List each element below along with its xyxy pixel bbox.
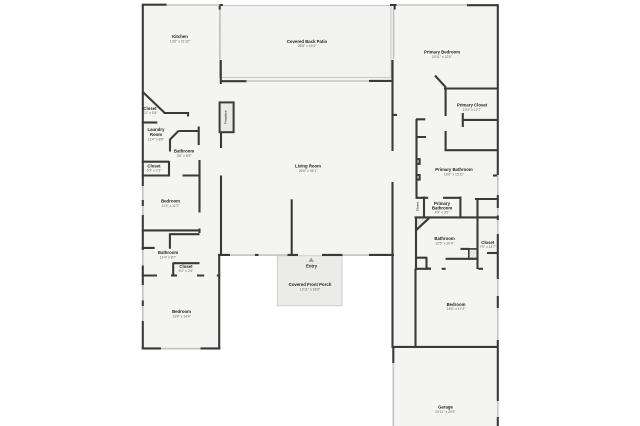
svg-text:Living Room: Living Room [295, 164, 321, 169]
svg-text:11'4" x 11'2": 11'4" x 11'2" [161, 204, 180, 208]
svg-text:Covered Front Porch: Covered Front Porch [289, 282, 332, 287]
svg-text:20'11" x 22'6": 20'11" x 22'6" [432, 55, 453, 59]
svg-text:Fireplace: Fireplace [223, 110, 227, 124]
svg-text:4'9" x 3'5": 4'9" x 3'5" [435, 210, 451, 214]
svg-text:Closet: Closet [416, 202, 420, 211]
svg-text:Bedroom: Bedroom [161, 199, 180, 204]
svg-text:16'5" x 15'11": 16'5" x 15'11" [444, 173, 465, 177]
svg-text:10'4" x 12'7": 10'4" x 12'7" [463, 108, 482, 112]
svg-text:3'6" x 8'9": 3'6" x 8'9" [177, 154, 193, 158]
svg-text:Bathroom: Bathroom [434, 236, 454, 241]
svg-text:36'6" x 15'4": 36'6" x 15'4" [298, 44, 317, 48]
svg-text:26'6" x 35'1": 26'6" x 35'1" [299, 169, 318, 173]
svg-text:12'5" x 10'4": 12'5" x 10'4" [435, 242, 454, 246]
svg-text:5'2" x 2'6": 5'2" x 2'6" [179, 269, 195, 273]
svg-text:16'5" x 17'4": 16'5" x 17'4" [447, 307, 466, 311]
svg-text:Bathroom: Bathroom [158, 250, 178, 255]
svg-text:11'4" x 8'6": 11'4" x 8'6" [148, 137, 165, 141]
svg-text:Bathroom: Bathroom [174, 149, 194, 154]
svg-text:Primary Bathroom: Primary Bathroom [435, 167, 473, 172]
svg-text:Bedroom: Bedroom [172, 309, 191, 314]
svg-text:11'4" x 8'7": 11'4" x 8'7" [160, 256, 177, 260]
svg-text:13'8" x 21'10": 13'8" x 21'10" [170, 40, 191, 44]
svg-text:12'11" x 18'8": 12'11" x 18'8" [300, 288, 321, 292]
svg-text:20'11" x 20'9": 20'11" x 20'9" [435, 410, 456, 414]
svg-text:Entry: Entry [306, 264, 318, 269]
svg-text:13'8" x 14'4": 13'8" x 14'4" [172, 315, 191, 319]
svg-text:Room: Room [150, 132, 162, 137]
svg-text:Primary Bedroom: Primary Bedroom [424, 50, 460, 55]
svg-text:7'9" x 14'7": 7'9" x 14'7" [479, 245, 497, 249]
svg-text:4'2" x 5'5": 4'2" x 5'5" [143, 111, 159, 115]
svg-text:Garage: Garage [438, 405, 453, 410]
svg-text:5'3" x 2'3": 5'3" x 2'3" [147, 169, 163, 173]
svg-text:Kitchen: Kitchen [172, 34, 188, 39]
